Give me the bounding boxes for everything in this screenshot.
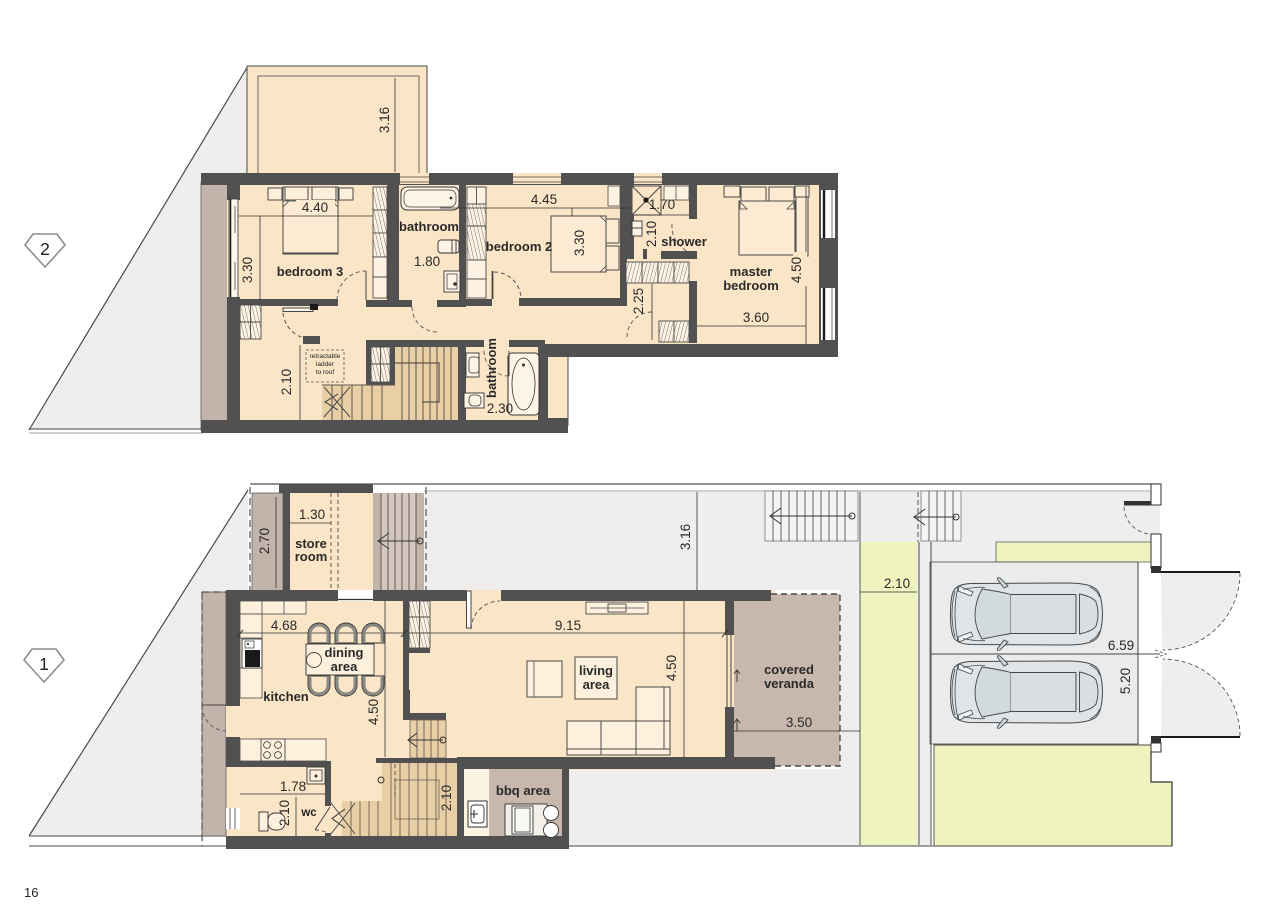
svg-text:4.50: 4.50 [664, 655, 679, 681]
svg-text:2.30: 2.30 [487, 401, 513, 416]
svg-text:bedroom: bedroom [723, 278, 779, 293]
svg-text:3.16: 3.16 [377, 107, 392, 133]
svg-text:covered: covered [764, 662, 814, 677]
svg-text:3.60: 3.60 [743, 310, 769, 325]
svg-text:veranda: veranda [764, 676, 815, 691]
svg-text:5.20: 5.20 [1118, 668, 1133, 694]
svg-text:bathroom: bathroom [399, 219, 459, 234]
svg-text:1.30: 1.30 [299, 507, 325, 522]
svg-text:1: 1 [39, 654, 49, 674]
svg-text:4.40: 4.40 [302, 200, 328, 215]
svg-text:3.30: 3.30 [240, 257, 255, 283]
svg-text:area: area [583, 677, 611, 692]
svg-text:16: 16 [24, 885, 38, 900]
svg-text:bedroom 2: bedroom 2 [486, 239, 552, 254]
svg-text:dining: dining [325, 645, 364, 660]
svg-text:2.70: 2.70 [257, 528, 272, 554]
svg-text:ladder: ladder [316, 361, 335, 368]
svg-text:bedroom 3: bedroom 3 [277, 264, 343, 279]
svg-text:master: master [730, 264, 773, 279]
svg-text:2.10: 2.10 [277, 800, 292, 826]
svg-text:4.68: 4.68 [271, 618, 297, 633]
svg-text:area: area [331, 659, 359, 674]
svg-text:6.59: 6.59 [1108, 638, 1134, 653]
svg-text:to roof: to roof [316, 369, 335, 376]
svg-text:shower: shower [661, 234, 707, 249]
svg-text:4.50: 4.50 [366, 699, 381, 725]
svg-text:bathroom: bathroom [484, 338, 499, 398]
svg-text:wc: wc [300, 807, 317, 819]
svg-text:2.10: 2.10 [644, 221, 659, 247]
svg-text:3.30: 3.30 [572, 230, 587, 256]
svg-text:4.50: 4.50 [789, 257, 804, 283]
svg-text:2.25: 2.25 [631, 288, 646, 314]
svg-text:2: 2 [40, 239, 50, 259]
svg-text:room: room [295, 549, 328, 564]
svg-text:retractable: retractable [310, 353, 341, 360]
svg-text:2.10: 2.10 [884, 576, 910, 591]
svg-text:1.80: 1.80 [414, 254, 440, 269]
svg-text:4.45: 4.45 [531, 192, 557, 207]
svg-text:9.15: 9.15 [555, 618, 581, 633]
svg-text:2.10: 2.10 [279, 369, 294, 395]
svg-text:living: living [579, 663, 613, 678]
svg-text:bbq area: bbq area [496, 783, 551, 798]
svg-text:kitchen: kitchen [263, 689, 309, 704]
svg-text:2.10: 2.10 [439, 785, 454, 811]
svg-text:3.50: 3.50 [786, 715, 812, 730]
svg-text:3.16: 3.16 [678, 524, 693, 550]
svg-text:1.78: 1.78 [280, 779, 306, 794]
